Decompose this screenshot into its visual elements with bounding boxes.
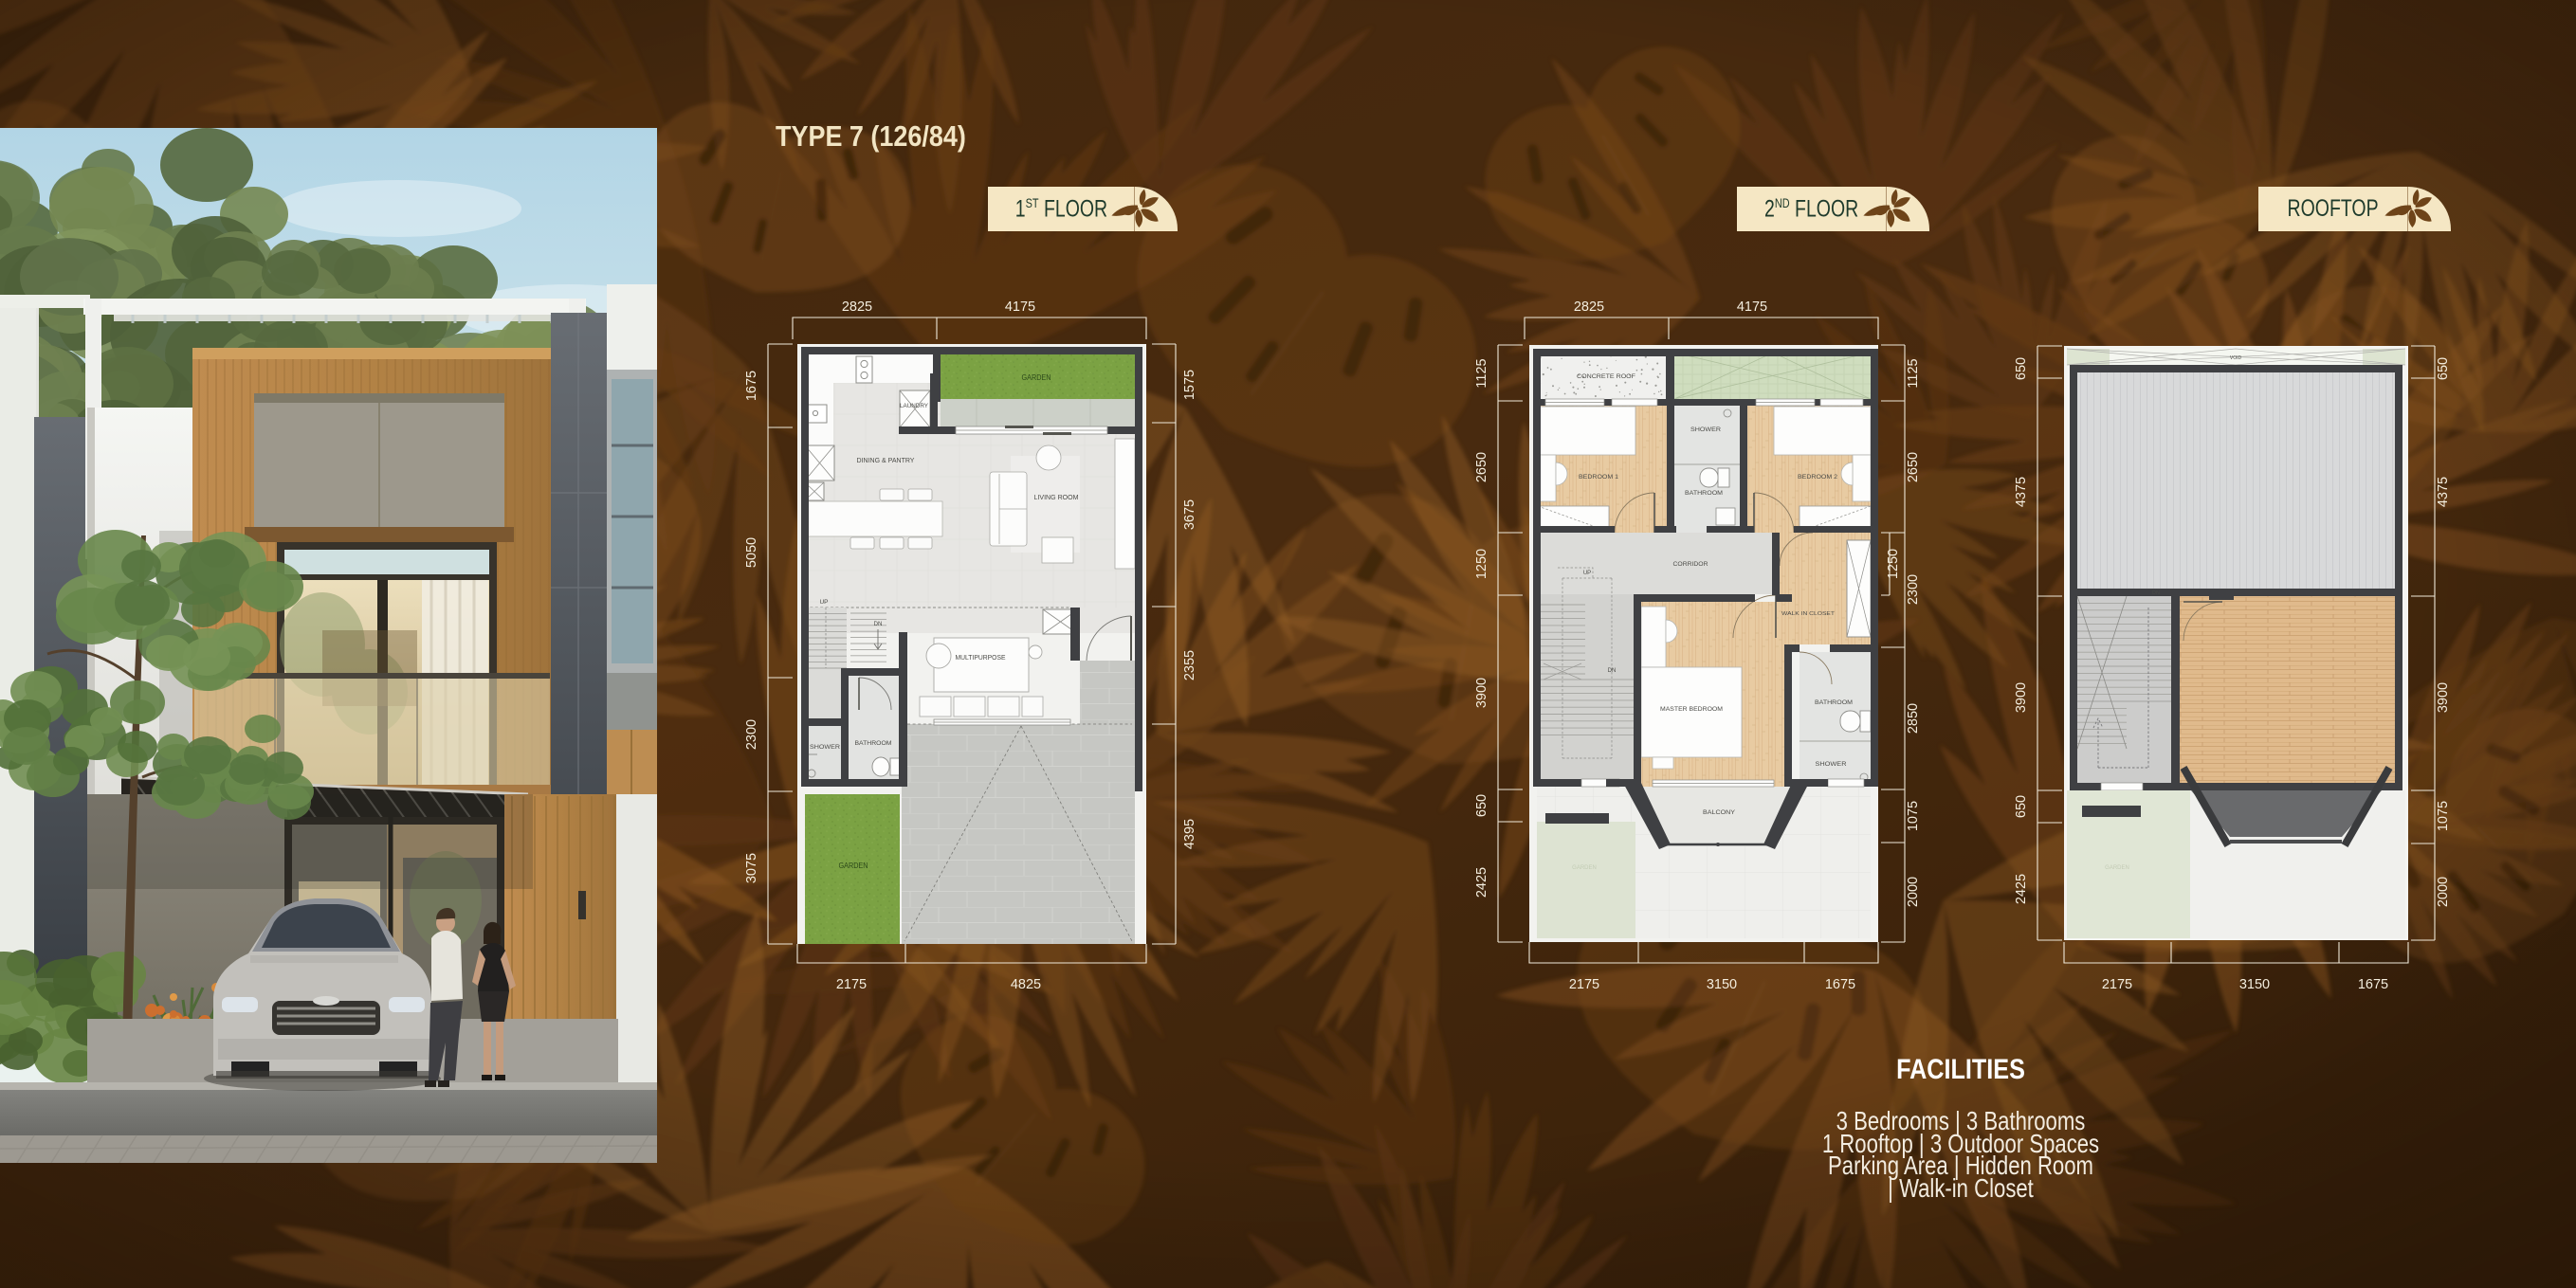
svg-text:2650: 2650 <box>1906 452 1921 482</box>
svg-text:2825: 2825 <box>1574 299 1604 315</box>
svg-text:650: 650 <box>2014 357 2029 380</box>
svg-text:1675: 1675 <box>2358 977 2388 992</box>
svg-text:1125: 1125 <box>1474 358 1489 388</box>
svg-text:1075: 1075 <box>2436 801 2451 831</box>
svg-text:LAUNDRY: LAUNDRY <box>900 403 928 409</box>
svg-text:3900: 3900 <box>2436 682 2451 713</box>
svg-text:WALK IN CLOSET: WALK IN CLOSET <box>1781 611 1836 617</box>
svg-text:2825: 2825 <box>842 299 872 315</box>
svg-text:2355: 2355 <box>1182 650 1197 680</box>
svg-text:CONCRETE ROOF: CONCRETE ROOF <box>1577 374 1635 380</box>
svg-text:BATHROOM: BATHROOM <box>1685 490 1723 497</box>
svg-text:3075: 3075 <box>744 853 759 883</box>
svg-text:BATHROOM: BATHROOM <box>855 740 892 747</box>
svg-text:MULTIPURPOSE: MULTIPURPOSE <box>956 653 1006 662</box>
svg-text:DN: DN <box>874 621 883 627</box>
svg-text:2300: 2300 <box>744 719 759 750</box>
svg-text:GARDEN: GARDEN <box>839 862 868 870</box>
svg-text:SHOWER: SHOWER <box>810 744 840 751</box>
svg-text:CORRIDOR: CORRIDOR <box>1673 561 1708 568</box>
svg-text:1675: 1675 <box>1825 977 1855 992</box>
svg-text:2000: 2000 <box>2436 877 2451 907</box>
svg-text:2425: 2425 <box>2014 874 2029 904</box>
svg-text:650: 650 <box>2436 357 2451 380</box>
svg-text:MASTER BEDROOM: MASTER BEDROOM <box>1660 706 1723 713</box>
svg-text:1125: 1125 <box>1906 358 1921 388</box>
svg-text:650: 650 <box>2014 795 2029 818</box>
svg-text:3675: 3675 <box>1182 499 1197 530</box>
svg-text:3150: 3150 <box>1707 977 1737 992</box>
svg-text:BEDROOM 1: BEDROOM 1 <box>1579 474 1618 481</box>
svg-text:LIVING ROOM: LIVING ROOM <box>1034 493 1079 501</box>
svg-text:4395: 4395 <box>1182 819 1197 849</box>
svg-text:UP: UP <box>1583 571 1591 576</box>
svg-text:3900: 3900 <box>2014 682 2029 713</box>
svg-text:3900: 3900 <box>1474 678 1489 708</box>
svg-text:4375: 4375 <box>2436 477 2451 507</box>
svg-text:DN: DN <box>1608 668 1617 674</box>
svg-text:2650: 2650 <box>1474 452 1489 482</box>
svg-text:BALCONY: BALCONY <box>1703 809 1735 816</box>
svg-text:4175: 4175 <box>1737 299 1767 315</box>
svg-text:1250: 1250 <box>1886 549 1901 579</box>
svg-text:2000: 2000 <box>1906 877 1921 907</box>
svg-text:3150: 3150 <box>2239 977 2270 992</box>
svg-text:2175: 2175 <box>1569 977 1599 992</box>
svg-text:2425: 2425 <box>1474 867 1489 898</box>
svg-text:1075: 1075 <box>1906 801 1921 831</box>
svg-text:4175: 4175 <box>1005 299 1035 315</box>
svg-text:GARDEN: GARDEN <box>2105 865 2129 871</box>
svg-text:1250: 1250 <box>1474 549 1489 579</box>
svg-text:DN: DN <box>2152 590 2160 596</box>
svg-text:4375: 4375 <box>2014 477 2029 507</box>
svg-text:2850: 2850 <box>1906 703 1921 734</box>
svg-text:SHOWER: SHOWER <box>1690 426 1721 433</box>
svg-text:VOID: VOID <box>2230 355 2242 361</box>
svg-text:BATHROOM: BATHROOM <box>1815 699 1853 706</box>
svg-text:1575: 1575 <box>1182 370 1197 400</box>
svg-text:UP: UP <box>819 599 828 606</box>
svg-text:GARDEN: GARDEN <box>1022 373 1051 382</box>
svg-text:1675: 1675 <box>744 371 759 401</box>
svg-text:4825: 4825 <box>1011 977 1041 992</box>
svg-text:2175: 2175 <box>836 977 867 992</box>
svg-text:5050: 5050 <box>744 537 759 568</box>
svg-text:2175: 2175 <box>2102 977 2132 992</box>
svg-text:650: 650 <box>1474 794 1489 817</box>
svg-text:DINING & PANTRY: DINING & PANTRY <box>857 456 915 464</box>
svg-text:2300: 2300 <box>1906 574 1921 605</box>
svg-text:GARDEN: GARDEN <box>1572 865 1597 871</box>
svg-text:BEDROOM 2: BEDROOM 2 <box>1798 474 1837 481</box>
svg-text:SHOWER: SHOWER <box>1816 761 1847 768</box>
